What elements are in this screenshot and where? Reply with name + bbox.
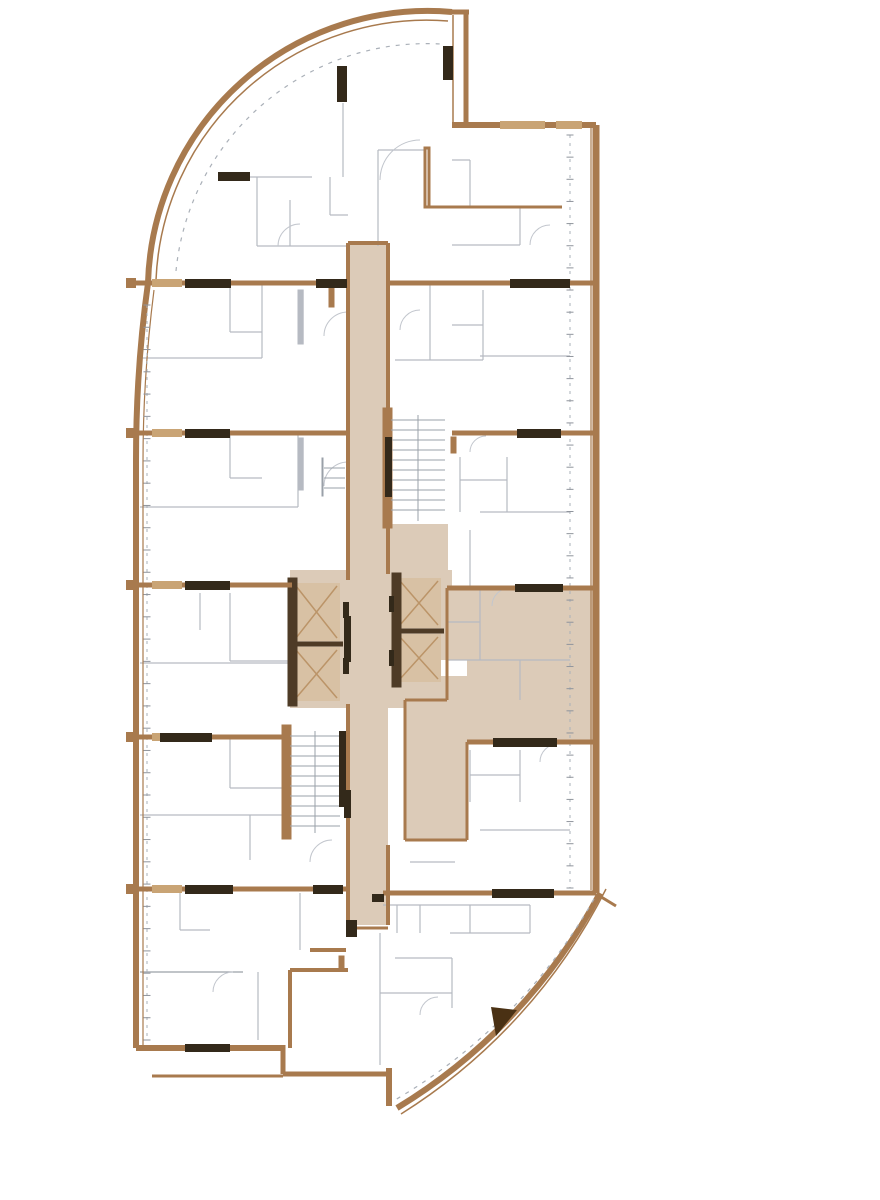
facade-arc-southeast-outer [401,889,606,1114]
wall-dark-segment [313,885,343,894]
room-pocket [440,660,467,676]
wall-stub [126,278,136,288]
wall-dark-segment [515,584,563,592]
wall-dark-segment [185,429,230,438]
wall-dark-segment [218,172,250,181]
door-jamb-dark [389,650,394,666]
door-arc [530,225,550,245]
wall-dark-segment [185,885,233,894]
wall-header-light [152,885,182,893]
door-arc [213,972,233,992]
stairwell-b [284,727,289,837]
wall-header-light [152,279,182,287]
door-arc [400,310,420,330]
vent-shaft [322,458,323,496]
wall-header-light [500,121,545,129]
wall-dark-segment [510,279,570,288]
door-arc [470,436,486,452]
wall-dark-segment [185,581,230,590]
wall-dark-segment [185,1044,230,1052]
wall-dark-segment [344,616,351,662]
elevator-lobby-fill [388,524,448,576]
west-wall-inner [143,290,154,1046]
wall-dark-segment [337,66,347,102]
wall-stub [126,884,136,894]
wall-header-light [152,429,182,437]
door-arc [310,840,332,862]
door-jamb-dark [343,602,349,618]
door-jamb-dark [389,596,394,612]
glazing-line-arc [176,44,441,271]
wall-dark-segment [443,46,453,80]
wall-dark-segment [493,738,557,747]
wall-dark-segment [372,894,384,902]
door-arc [324,462,348,486]
wall-stub [126,580,136,590]
door-arc [324,312,348,336]
bathroom-outline [300,440,301,488]
wall-stub [126,732,136,742]
room-pocket [388,742,405,759]
glazing-line-arc [395,899,594,1100]
wall-dark-segment [346,920,357,937]
wall-dark-segment [185,279,231,288]
wall-header-light [556,121,582,129]
door-arc [420,997,438,1015]
floor-plan-page [0,0,880,1200]
door-arc [380,140,420,180]
wall-dark-segment [385,437,392,497]
bathroom-outline [300,292,301,342]
riser-shaft [425,148,429,207]
corridor-niche [330,288,333,306]
wall-dark-segment [160,733,212,742]
wall-dark-segment [316,279,347,288]
wall-dark-segment [492,889,554,898]
west-wall [136,283,148,1048]
floor-plan-canvas [0,0,880,1200]
wall-header-light [152,581,182,589]
wall-dark-segment [517,429,561,438]
wall-stub [126,428,136,438]
wall-dark-segment [344,790,351,818]
door-notch [452,438,455,452]
door-arc [278,224,300,246]
